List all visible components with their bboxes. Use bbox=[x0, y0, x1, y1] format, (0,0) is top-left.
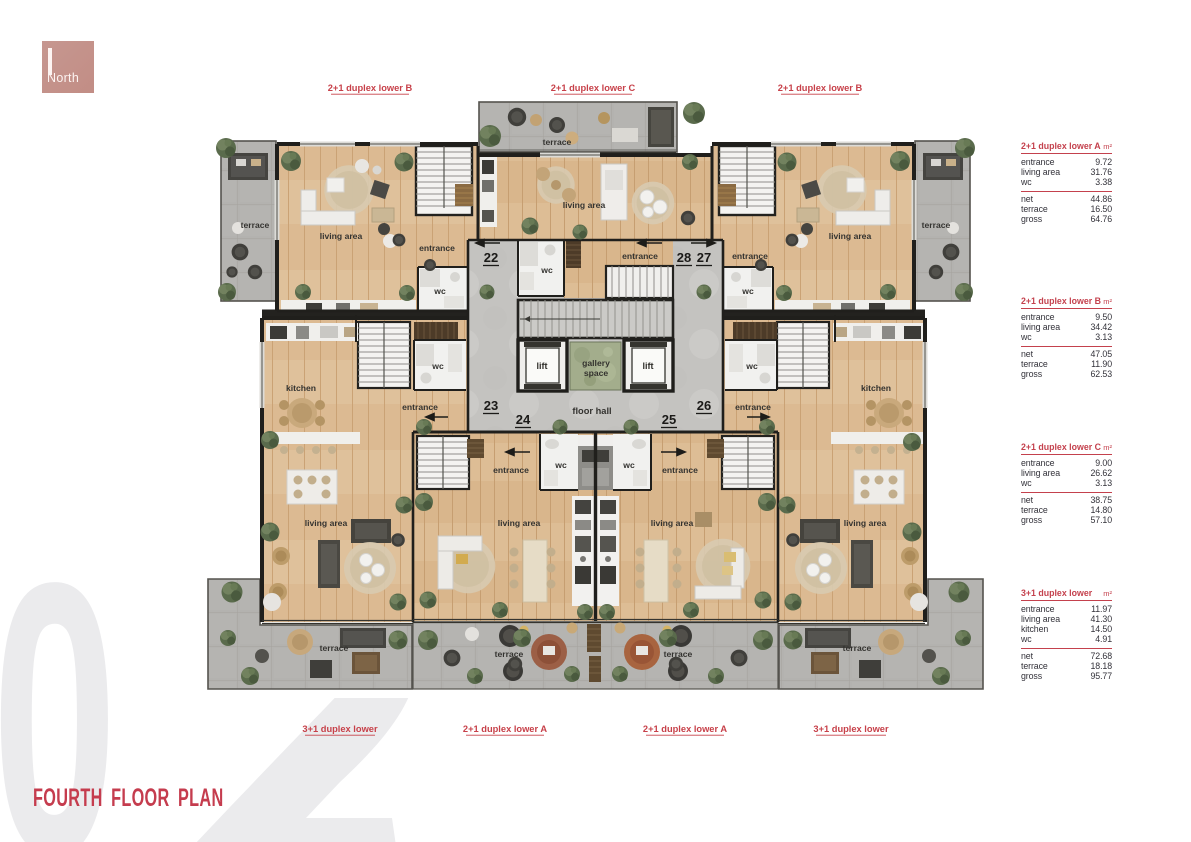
svg-text:wc: wc bbox=[622, 460, 635, 470]
svg-text:living area: living area bbox=[844, 518, 887, 528]
svg-text:24: 24 bbox=[516, 412, 531, 427]
svg-text:2+1 duplex lower A: 2+1 duplex lower A bbox=[643, 724, 727, 734]
svg-text:23: 23 bbox=[484, 398, 498, 413]
svg-text:26: 26 bbox=[697, 398, 711, 413]
svg-text:entrance: entrance bbox=[732, 251, 768, 261]
svg-text:2+1 duplex lower B: 2+1 duplex lower B bbox=[778, 83, 863, 93]
svg-text:wc: wc bbox=[433, 286, 446, 296]
svg-text:entrance: entrance bbox=[662, 465, 698, 475]
svg-text:25: 25 bbox=[662, 412, 676, 427]
svg-text:3+1 duplex lower: 3+1 duplex lower bbox=[302, 724, 378, 734]
svg-text:kitchen: kitchen bbox=[861, 383, 891, 393]
svg-text:wc: wc bbox=[540, 265, 553, 275]
svg-text:living area: living area bbox=[563, 200, 606, 210]
svg-text:2+1 duplex lower A: 2+1 duplex lower A bbox=[463, 724, 547, 734]
svg-text:wc: wc bbox=[554, 460, 567, 470]
svg-text:28: 28 bbox=[677, 250, 691, 265]
svg-text:3+1 duplex lower: 3+1 duplex lower bbox=[813, 724, 889, 734]
svg-text:22: 22 bbox=[484, 250, 498, 265]
svg-text:terrace: terrace bbox=[664, 649, 693, 659]
svg-text:terrace: terrace bbox=[241, 220, 270, 230]
svg-text:living area: living area bbox=[498, 518, 541, 528]
svg-text:wc: wc bbox=[741, 286, 754, 296]
svg-text:terrace: terrace bbox=[320, 643, 349, 653]
svg-text:kitchen: kitchen bbox=[286, 383, 316, 393]
svg-text:terrace: terrace bbox=[922, 220, 951, 230]
svg-text:floor hall: floor hall bbox=[572, 406, 611, 416]
svg-text:lift: lift bbox=[537, 361, 548, 371]
svg-text:entrance: entrance bbox=[735, 402, 771, 412]
svg-text:living area: living area bbox=[829, 231, 872, 241]
svg-text:living area: living area bbox=[651, 518, 694, 528]
svg-text:entrance: entrance bbox=[402, 402, 438, 412]
svg-text:entrance: entrance bbox=[622, 251, 658, 261]
svg-text:27: 27 bbox=[697, 250, 711, 265]
svg-text:wc: wc bbox=[431, 361, 444, 371]
svg-text:terrace: terrace bbox=[543, 137, 572, 147]
svg-text:terrace: terrace bbox=[495, 649, 524, 659]
svg-text:2+1 duplex lower B: 2+1 duplex lower B bbox=[328, 83, 413, 93]
svg-text:lift: lift bbox=[643, 361, 654, 371]
svg-text:living area: living area bbox=[305, 518, 348, 528]
svg-text:wc: wc bbox=[745, 361, 758, 371]
svg-text:2+1 duplex lower C: 2+1 duplex lower C bbox=[551, 83, 636, 93]
svg-text:entrance: entrance bbox=[493, 465, 529, 475]
svg-text:space: space bbox=[584, 368, 609, 378]
svg-text:gallery: gallery bbox=[582, 358, 610, 368]
svg-text:terrace: terrace bbox=[843, 643, 872, 653]
svg-text:living area: living area bbox=[320, 231, 363, 241]
svg-text:entrance: entrance bbox=[419, 243, 455, 253]
